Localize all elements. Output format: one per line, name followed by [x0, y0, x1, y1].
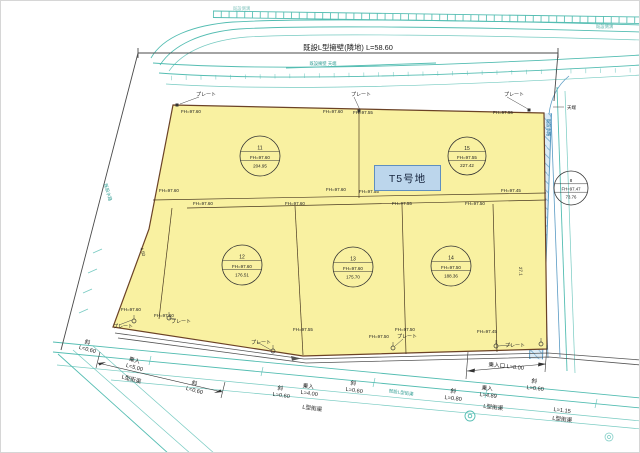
length-label: L=1.15 [553, 407, 571, 415]
leader-line [180, 97, 199, 104]
t5-lot-label-box[interactable]: T5号地 [374, 165, 441, 191]
retaining-wall-label: 既設L型擁壁(隣地) L=58.60 [303, 43, 393, 52]
plate-label: プレート [171, 319, 191, 325]
site-plan-svg: 既設L型擁壁(隣地) L=58.60 プレート プレート プレート プレート プ… [1, 1, 640, 453]
slope-length-label: L=0.60 [272, 392, 290, 400]
road-line [153, 55, 640, 67]
slope-hatch [83, 289, 92, 293]
lot-stamp-8: 8 FH=97.47 73.76 [554, 171, 588, 205]
roads-bottom [53, 342, 640, 453]
lot-fh: FH=97.47 [562, 187, 582, 192]
slope-label: 斜 [450, 387, 457, 396]
road-line [557, 87, 567, 371]
fh-label: FH=97.60 [121, 307, 141, 312]
lot-area: 188.36 [444, 273, 458, 278]
lot-id: 8 [570, 178, 573, 183]
fh-label: FH=97.45 [477, 329, 497, 334]
lot-fh: FH=97.60 [232, 264, 252, 269]
road-note: 既設側溝 [596, 23, 614, 30]
existing-gutter-label: 既設L型街渠 [388, 387, 414, 397]
fence-line [213, 11, 640, 17]
gutter-label: L型街渠 [552, 414, 573, 424]
slope-arrow [291, 356, 301, 361]
channel-label: 既設水路 [102, 183, 114, 203]
lot-area: 73.76 [566, 195, 577, 200]
slope-hatch [93, 249, 102, 253]
manhole-icon [468, 414, 472, 418]
plate-label: プレート [397, 334, 417, 340]
lot-fh: FH=97.60 [343, 266, 363, 271]
junction-line [58, 354, 169, 453]
dim-label: 27.1 [518, 267, 523, 276]
road-note: 既設側溝 [233, 5, 251, 12]
gutter-label: L型街渠 [121, 373, 143, 386]
plate-label: プレート [505, 343, 525, 349]
plate-label: プレート [196, 92, 216, 98]
lot-id: 14 [448, 256, 454, 262]
road-line [151, 20, 640, 58]
fence-ticks [213, 14, 640, 20]
fh-label: FH=97.60 [326, 187, 346, 192]
fh-label: FH=97.50 [465, 201, 485, 206]
wall-top-note: 既設擁壁 天端 [310, 60, 338, 67]
station-tick [149, 356, 151, 365]
slope-label: 斜 [277, 384, 284, 393]
slope-label: 斜 [531, 377, 538, 386]
entry-mouth-label: 乗入口 L=8.00 [488, 361, 524, 372]
manhole-icon [465, 411, 475, 421]
leader-line [507, 97, 528, 109]
ext-line [466, 352, 468, 379]
lot-area: 204.95 [253, 163, 267, 168]
manhole-icon [605, 433, 613, 441]
tenba-label: 天端 [567, 104, 576, 111]
t5-lot-label: T5号地 [389, 171, 426, 186]
lot-area: 175.70 [346, 274, 360, 279]
lot-area [113, 105, 640, 365]
slope-length-label: L=0.80 [444, 395, 462, 403]
lot-id: 12 [239, 255, 245, 261]
dim-arrow [538, 363, 546, 367]
lot-fh: FH=97.55 [457, 155, 477, 160]
slope-length-label: L=0.60 [345, 387, 363, 395]
dim-arrow [467, 369, 475, 373]
slope-hatch [88, 269, 97, 273]
dim-arrow [98, 362, 106, 366]
leader-line [354, 97, 360, 110]
entry-length-label: L=4.89 [479, 392, 497, 400]
slope-length-label: L=0.60 [526, 385, 544, 393]
plate-label: プレート [504, 92, 524, 98]
fh-label: FH=97.60 [154, 313, 174, 318]
slope-label: 斜 [350, 379, 357, 388]
dim-line [98, 363, 222, 392]
manhole-icon [608, 436, 611, 439]
fh-label: FH=97.50 [369, 334, 389, 339]
slope-length-label: L=0.60 [185, 386, 203, 396]
fh-label: FH=97.50 [395, 327, 415, 332]
slope-hatch [79, 309, 88, 313]
lot-fh: FH=97.50 [441, 265, 461, 270]
lot-id: 13 [350, 257, 356, 263]
lot-area: 176.51 [235, 272, 249, 277]
fh-label: FH=97.55 [392, 201, 412, 206]
roads-top [151, 11, 640, 87]
lot-id: 11 [257, 146, 262, 152]
fh-label: FH=97.55 [293, 327, 313, 332]
fh-label: FH=97.60 [159, 188, 179, 193]
plate-label: プレート [113, 324, 133, 330]
fh-label: FH=97.60 [181, 109, 201, 114]
entry-length-label: L=4.00 [300, 390, 318, 398]
channel-edge [551, 113, 560, 357]
plate-label: プレート [251, 340, 271, 346]
fh-label: FH=97.55 [493, 110, 513, 115]
gutter-label: L型街渠 [483, 402, 504, 412]
plate-mark [176, 104, 179, 107]
ext-line [96, 352, 100, 368]
fh-label: FH=97.60 [285, 201, 305, 206]
channel-curve [549, 76, 569, 114]
fh-label: FH=97.60 [193, 201, 213, 206]
road-line [565, 91, 575, 373]
lot-id: 15 [464, 146, 470, 152]
plate-label: プレート [351, 92, 371, 98]
fh-label: FH=97.55 [353, 110, 373, 115]
fh-label: FH=97.45 [501, 188, 521, 193]
lot-area: 227.42 [460, 163, 474, 168]
lot-fh: FH=97.60 [250, 155, 270, 160]
channel-label: 既設水路 [545, 119, 552, 137]
fh-label: FH=97.60 [323, 109, 343, 114]
gutter-label: L型街渠 [302, 403, 323, 414]
site-plan-canvas: 既設L型擁壁(隣地) L=58.60 プレート プレート プレート プレート プ… [0, 0, 640, 453]
